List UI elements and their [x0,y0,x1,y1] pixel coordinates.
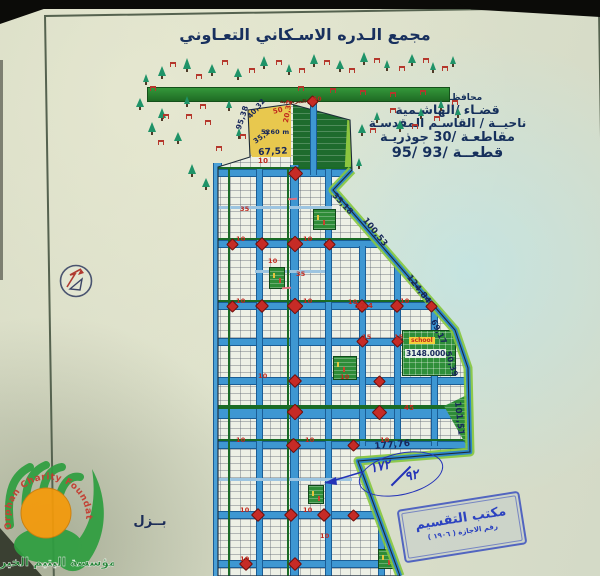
north-arrow [58,263,94,299]
intersection-node [323,238,336,251]
measurement-label: 10 [236,436,245,444]
measurement-label: 10 [240,506,249,514]
intersection-node [347,439,360,452]
measurement-label: 10 [340,373,349,381]
intersection-node [285,437,301,453]
intersection-node [284,508,298,522]
logo-arabic-text: مؤسسة اليتيم الخيرية [0,555,114,570]
measurement-label: 32,4 [355,302,373,310]
intersection-node [287,236,304,253]
measurement-label: 10 [320,532,329,540]
measurement-label: 10 [236,297,245,305]
measurement-label: 10 [240,555,249,563]
pink-scribble [288,198,297,201]
measurement-label: 101,51 [452,401,466,436]
intersection-node [371,404,387,420]
intersection-node [317,508,331,522]
measurement-label: 10 [400,297,409,305]
measurement-label: 10 [258,157,268,165]
intersection-node [373,375,386,388]
measurement-label: 5260 m [261,128,289,136]
intersection-node [255,237,269,251]
measurement-label: 50,39 [443,350,459,378]
note-bottom-number: ٩٢ [403,467,420,485]
measurement-label: 10 [303,506,312,514]
measurement-label: 10 [305,436,314,444]
measurement-label: 10 [303,235,312,243]
intersection-node [347,509,360,522]
intersection-node [251,508,265,522]
measurement-label: 35 [240,205,249,213]
intersection-node [255,299,269,313]
pink-scribble [282,287,291,290]
measurement-label: 10 [268,257,277,265]
measurement-label: 35,18 [330,191,355,216]
intersection-node [288,557,302,571]
measurement-label: 50 [272,106,284,116]
intersection-node [287,404,304,421]
note-top-number: ١٧٢ [368,457,392,476]
measurement-label: 10 [303,297,312,305]
measurement-label: 69,17 [429,318,449,346]
measurement-label: 15 [362,333,371,341]
measurement-label: 10 [348,298,357,306]
measurement-label: 50 [313,96,322,103]
measurement-label: 10 [380,436,389,444]
measurement-label: 45 [404,404,414,412]
intersection-node [288,374,302,388]
measurement-label: 100,53 [360,216,389,249]
scanned-map-photo: مجمع الـدره الاسـكاني التعـاوني محافظـة … [0,0,600,576]
measurement-label: 15 [394,333,403,341]
measurement-label: 35 [296,270,305,278]
measurement-label: 10 [236,235,245,243]
intersection-node [287,298,304,315]
measurement-label: 95,38 [234,104,250,130]
measurement-label: 20,32 [282,99,294,123]
intersection-node [287,165,303,181]
logo-sun [21,488,71,538]
road-connector [310,99,317,175]
measurement-label: 10 [258,372,267,380]
charity-foundation-logo: Orphan Charity Foundation مؤسسة اليتيم ا… [0,425,114,576]
